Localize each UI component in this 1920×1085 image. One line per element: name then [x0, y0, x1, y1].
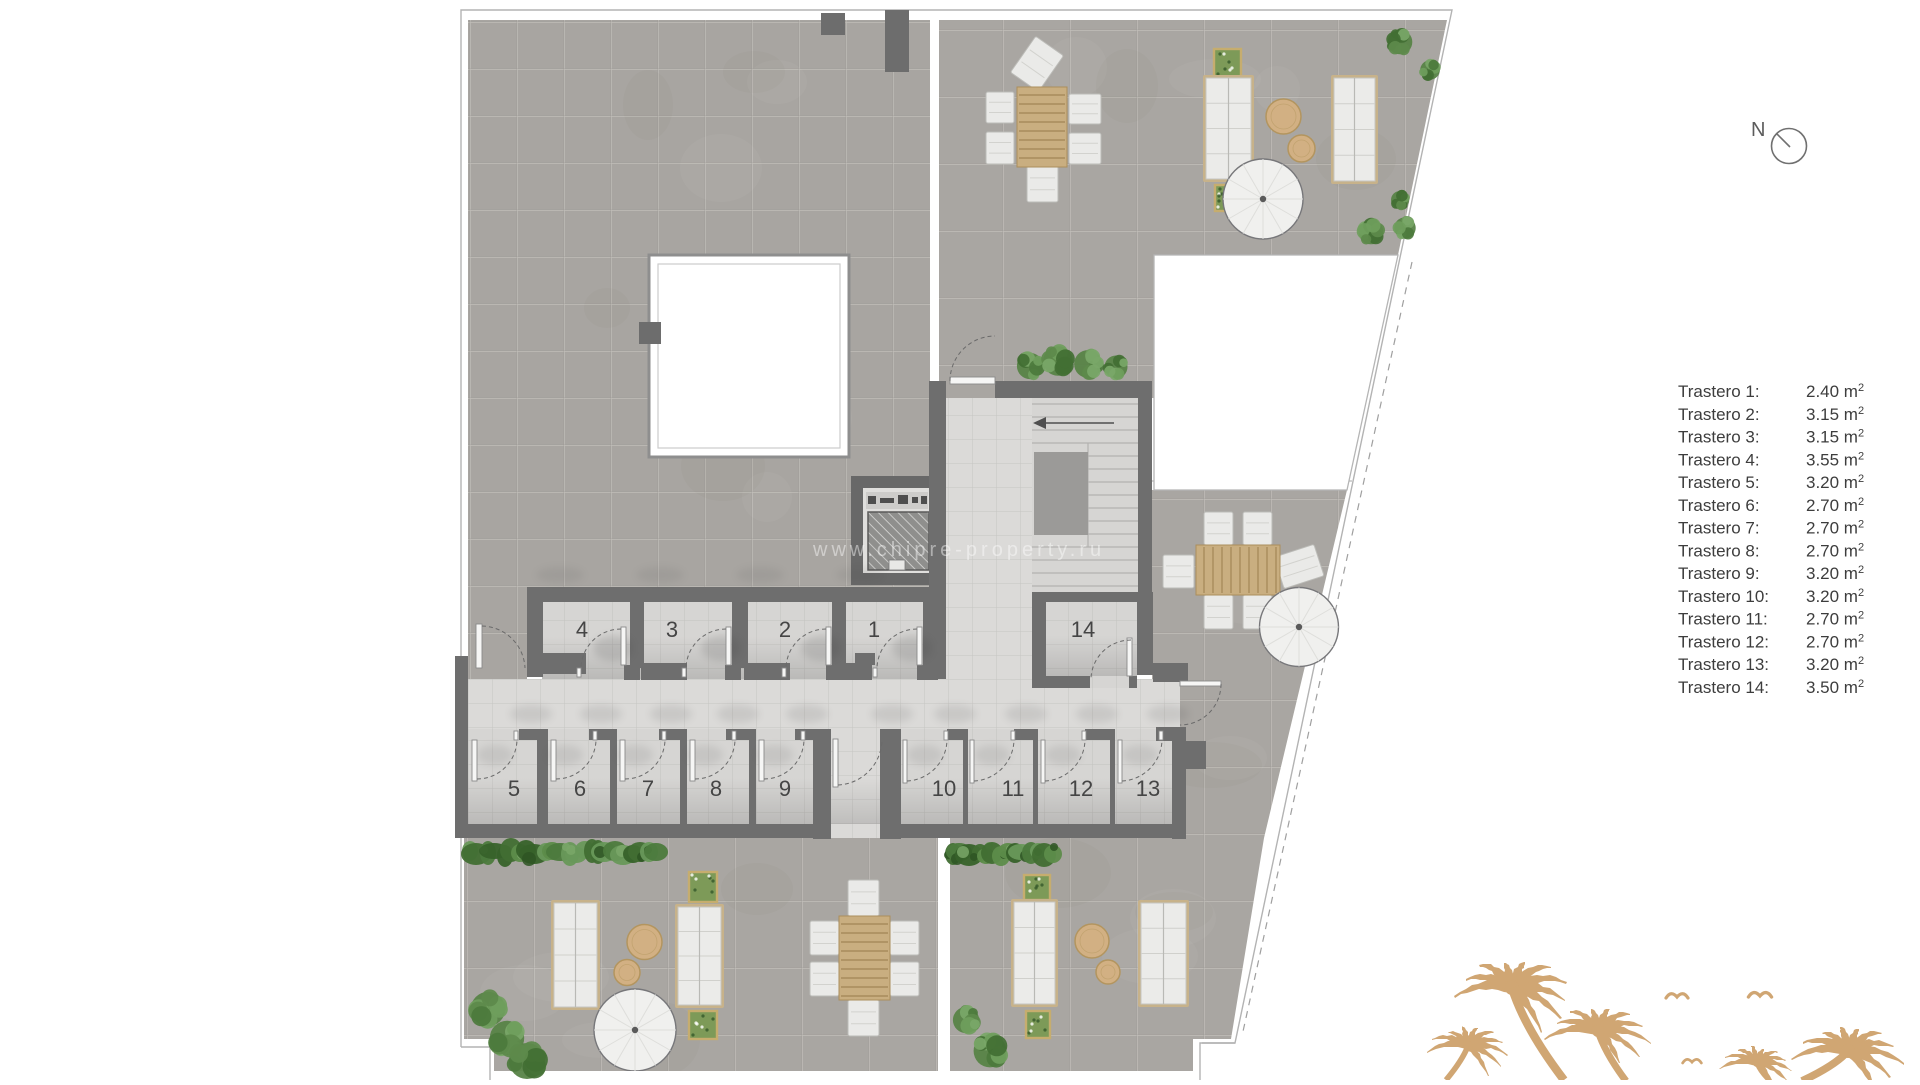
- svg-text:5: 5: [508, 776, 520, 801]
- svg-text:Trastero 11:: Trastero 11:: [1678, 610, 1768, 629]
- svg-text:3.20 m2: 3.20 m2: [1806, 473, 1864, 492]
- svg-text:4: 4: [576, 617, 588, 642]
- svg-text:7: 7: [642, 776, 654, 801]
- svg-text:6: 6: [574, 776, 586, 801]
- svg-text:3.55 m2: 3.55 m2: [1806, 450, 1864, 469]
- svg-text:2.70 m2: 2.70 m2: [1806, 496, 1864, 515]
- svg-text:Trastero 10:: Trastero 10:: [1678, 587, 1769, 606]
- svg-text:3.20 m2: 3.20 m2: [1806, 564, 1864, 583]
- svg-text:2: 2: [779, 617, 791, 642]
- svg-text:8: 8: [710, 776, 722, 801]
- svg-text:Trastero 12:: Trastero 12:: [1678, 633, 1769, 652]
- svg-text:Trastero 4:: Trastero 4:: [1678, 450, 1760, 469]
- svg-text:Trastero 6:: Trastero 6:: [1678, 496, 1760, 515]
- svg-text:3.50 m2: 3.50 m2: [1806, 678, 1864, 697]
- svg-text:Trastero 14:: Trastero 14:: [1678, 678, 1769, 697]
- svg-text:Trastero 2:: Trastero 2:: [1678, 405, 1760, 424]
- svg-text:1: 1: [868, 617, 880, 642]
- svg-text:9: 9: [779, 776, 791, 801]
- svg-text:14: 14: [1071, 617, 1095, 642]
- svg-text:Trastero 3:: Trastero 3:: [1678, 428, 1760, 447]
- svg-text:13: 13: [1136, 776, 1160, 801]
- svg-text:Trastero 7:: Trastero 7:: [1678, 519, 1760, 538]
- svg-text:Trastero 1:: Trastero 1:: [1678, 382, 1760, 401]
- svg-text:www.chipre-property.ru: www.chipre-property.ru: [812, 539, 1105, 561]
- svg-text:3: 3: [666, 617, 678, 642]
- svg-text:Trastero 9:: Trastero 9:: [1678, 564, 1760, 583]
- svg-text:N: N: [1751, 119, 1765, 141]
- svg-text:2.70 m2: 2.70 m2: [1806, 519, 1864, 538]
- svg-text:3.15 m2: 3.15 m2: [1806, 405, 1864, 424]
- svg-text:2.70 m2: 2.70 m2: [1806, 610, 1864, 629]
- svg-text:Trastero 8:: Trastero 8:: [1678, 541, 1760, 560]
- svg-text:3.20 m2: 3.20 m2: [1806, 655, 1864, 674]
- svg-text:Trastero 5:: Trastero 5:: [1678, 473, 1760, 492]
- svg-text:2.40 m2: 2.40 m2: [1806, 382, 1864, 401]
- svg-text:2.70 m2: 2.70 m2: [1806, 541, 1864, 560]
- svg-text:2.70 m2: 2.70 m2: [1806, 633, 1864, 652]
- svg-text:3.20 m2: 3.20 m2: [1806, 587, 1864, 606]
- svg-text:11: 11: [1002, 776, 1025, 801]
- svg-text:12: 12: [1069, 776, 1093, 801]
- svg-text:10: 10: [932, 776, 956, 801]
- svg-text:3.15 m2: 3.15 m2: [1806, 428, 1864, 447]
- svg-text:Trastero 13:: Trastero 13:: [1678, 655, 1769, 674]
